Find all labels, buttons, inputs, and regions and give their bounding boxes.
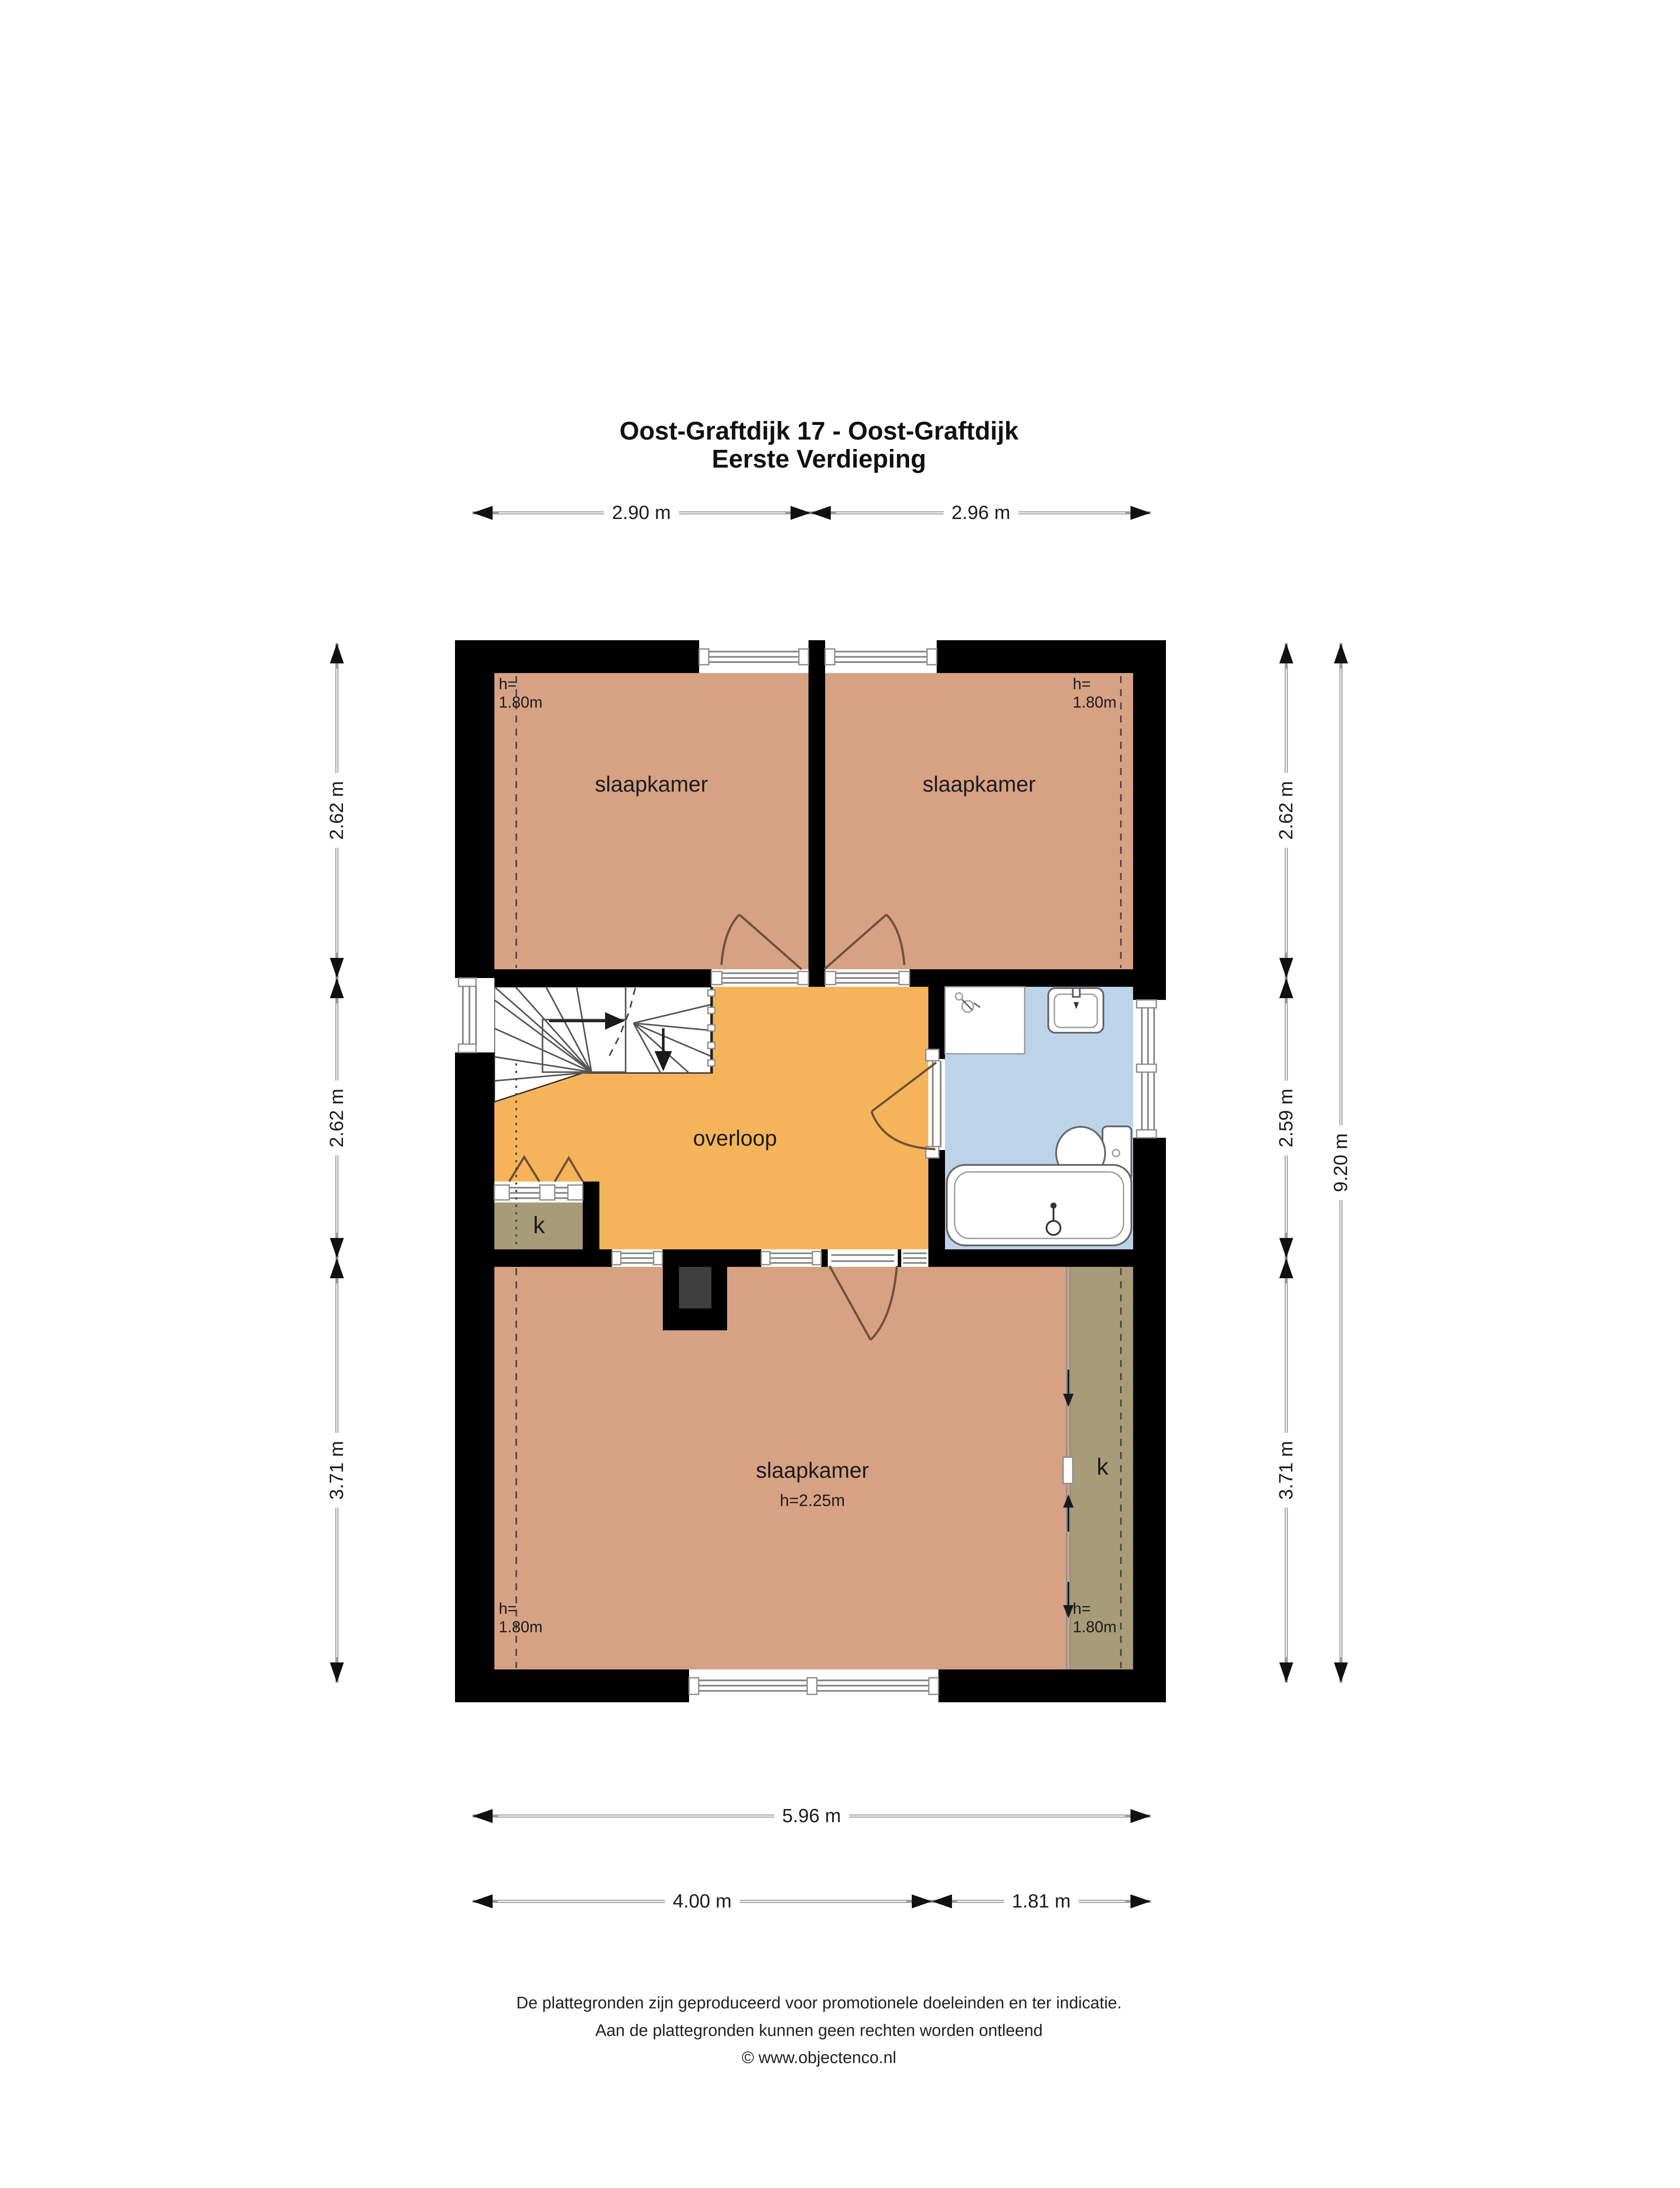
dim-top-left: 2.90 m [604,501,679,525]
room-label-bedroom-bottom-height: h=2.25m [780,1492,845,1511]
room-label-landing: overloop [693,1126,777,1151]
bedroom-top-right-floor [825,673,1133,969]
dim-left-3: 3.71 m [325,1433,349,1508]
dim-right-inner-3: 3.71 m [1274,1433,1298,1508]
shower [945,987,1025,1054]
window-wall-b-2 [761,1249,821,1267]
dim-bottom-left: 4.00 m [665,1890,740,1913]
slide-handle [1063,1457,1073,1483]
threshold-bedroom-right-door [825,969,910,987]
dim-left-2: 2.62 m [325,1081,349,1156]
wall-top-right-seg [937,640,1166,673]
wall-right-lower [1133,1138,1166,1702]
sink [1048,988,1103,1033]
closet-label-right: k [1097,1453,1109,1480]
room-label-bedroom-bottom: slaapkamer [756,1458,869,1483]
window-wall-b-1 [612,1249,662,1267]
wall-left-lower [455,1052,494,1702]
height-label-top-right: h= 1.80m [1073,675,1116,712]
glass-strip-wall-b [901,1249,928,1267]
wall-right-upper [1133,640,1166,1000]
chimney-core [679,1267,711,1308]
wall-bathroom-left-upper [928,987,945,1059]
window-right-bathroom [1133,1000,1166,1138]
page-title-line2: Eerste Verdieping [712,445,926,474]
floorplan-page: Oost-Graftdijk 17 - Oost-Graftdijk Eerst… [0,0,1680,2188]
wall-a-mid [808,969,825,987]
window-left [455,978,494,1052]
height-label-bottom-left: h= 1.80m [499,1599,542,1636]
dim-right-inner-2: 2.59 m [1274,1081,1298,1156]
bathtub [947,1165,1131,1245]
wall-bathroom-left-lower [928,1150,945,1249]
wall-b-seg4 [898,1249,901,1267]
bathtub-faucet [1046,1221,1060,1235]
wall-bottom-left-seg [455,1669,689,1702]
window-bottom [689,1669,938,1702]
opening-bathroom-door [926,1049,945,1158]
wall-a-right [910,969,1133,987]
dim-right-outer: 9.20 m [1329,1126,1353,1200]
dim-top-right: 2.96 m [944,501,1018,525]
height-label-bottom-right: h= 1.80m [1073,1599,1116,1636]
height-label-top-left: h= 1.80m [499,675,542,712]
wall-closet-stub [583,1182,599,1267]
bedroom-top-left-floor [494,673,808,969]
footer-line1: De plattegronden zijn geproduceerd voor … [516,1994,1122,2013]
wall-bottom-right-seg [938,1669,1166,1702]
wall-left-upper [455,640,494,978]
closet-label-left: k [533,1212,545,1239]
wall-b-seg5 [928,1249,1133,1267]
dim-left-1: 2.62 m [325,773,349,848]
room-label-bedroom-top-left: slaapkamer [595,771,708,797]
room-label-bedroom-top-right: slaapkamer [923,771,1036,797]
page-title-line1: Oost-Graftdijk 17 - Oost-Graftdijk [619,417,1018,446]
opening-bottom-bedroom-door [828,1249,898,1267]
dim-right-inner-1: 2.62 m [1274,773,1298,848]
window-top-right [825,640,937,673]
footer-line3: © www.objectenco.nl [742,2049,896,2068]
dim-bottom-right: 1.81 m [1004,1890,1079,1913]
window-top-left [699,640,808,673]
dim-bottom-total: 5.96 m [774,1804,849,1828]
floorplan-drawing [0,0,1680,2188]
wall-center-bedrooms [808,640,825,969]
footer-line2: Aan de plattegronden kunnen geen rechten… [595,2022,1043,2041]
threshold-bedroom-left-door [711,969,808,987]
wall-b-seg3 [821,1249,828,1267]
wall-a-left [494,969,711,987]
wall-b-seg2 [662,1249,761,1267]
